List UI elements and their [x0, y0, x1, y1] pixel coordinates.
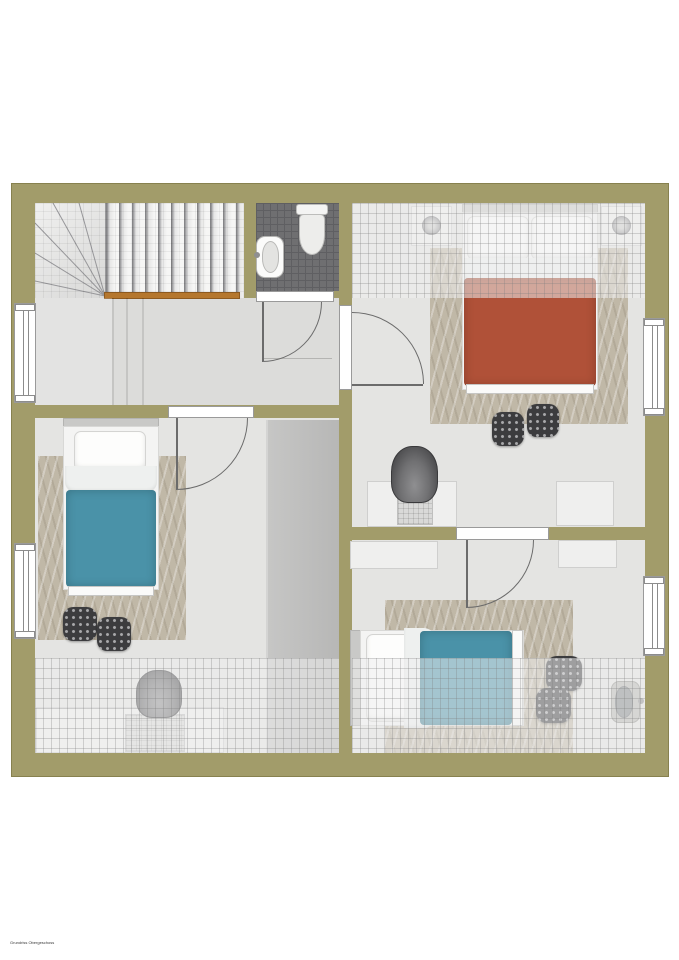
single-bed-left — [63, 418, 159, 598]
bedroom-top-right-door-leaf — [352, 384, 423, 386]
roof-slope-hatch-bottom-left — [35, 658, 339, 753]
bed-pillow — [74, 431, 146, 471]
stair-edge-wood-strip — [104, 292, 240, 299]
bed-duvet-blue — [66, 490, 156, 587]
roof-slope-hatch-bottom-right — [352, 658, 645, 753]
sideboard-left-bottom-right — [350, 541, 438, 569]
window-pane — [652, 583, 658, 649]
stairwell-tile-grid — [35, 203, 244, 298]
sink-basin — [262, 241, 279, 273]
bed-sheet-fold — [65, 466, 157, 492]
window-bedroom-left — [14, 543, 36, 639]
window-cap — [644, 648, 664, 655]
bed-footboard — [68, 586, 154, 596]
bedroom-bottom-right-door-swing-arc — [466, 540, 534, 608]
hallway-stair-line-1 — [112, 298, 114, 405]
pouf-2-top-right — [527, 404, 559, 437]
window-bedroom-bottom-right — [643, 576, 665, 656]
pouf-2-left — [97, 617, 131, 651]
hallway-stair-line-3 — [142, 298, 144, 405]
window-cap — [15, 631, 35, 638]
window-cap — [15, 395, 35, 402]
watermark-text: Grundriss Obergeschoss — [10, 940, 54, 945]
pouf-1-left — [63, 607, 97, 641]
dresser-top-right — [556, 481, 614, 526]
window-bedroom-top-right — [643, 318, 665, 416]
window-pane — [652, 325, 658, 409]
pouf-1-top-right — [492, 412, 524, 446]
toilet-bowl — [299, 214, 325, 255]
bedroom-top-right-door-swing-arc — [352, 312, 424, 384]
bedroom-left-door-swing-arc — [176, 418, 248, 490]
bedroom-bottom-right-door-frame — [456, 527, 549, 540]
sideboard-right-bottom-right — [558, 540, 617, 568]
bathroom-sink — [256, 236, 284, 278]
window-pane — [23, 550, 29, 632]
bed-footboard — [466, 384, 594, 394]
floor-plan — [12, 184, 668, 776]
hallway-light-zone — [35, 298, 112, 405]
floor-plan-page: Grundriss Obergeschoss — [0, 0, 679, 960]
roof-slope-hatch-top-right — [352, 203, 645, 298]
bathroom-door-frame — [256, 291, 334, 302]
window-hallway-left — [14, 303, 36, 403]
window-pane — [23, 310, 29, 396]
bathroom-door-swing-arc — [262, 302, 322, 362]
window-cap — [644, 408, 664, 415]
bedroom-left-door-frame — [168, 406, 254, 418]
hallway-stair-line-2 — [126, 298, 128, 405]
bedroom-top-right-door-frame — [339, 305, 352, 390]
sink-tap — [254, 252, 260, 258]
desk-chair-top-right — [391, 446, 438, 503]
